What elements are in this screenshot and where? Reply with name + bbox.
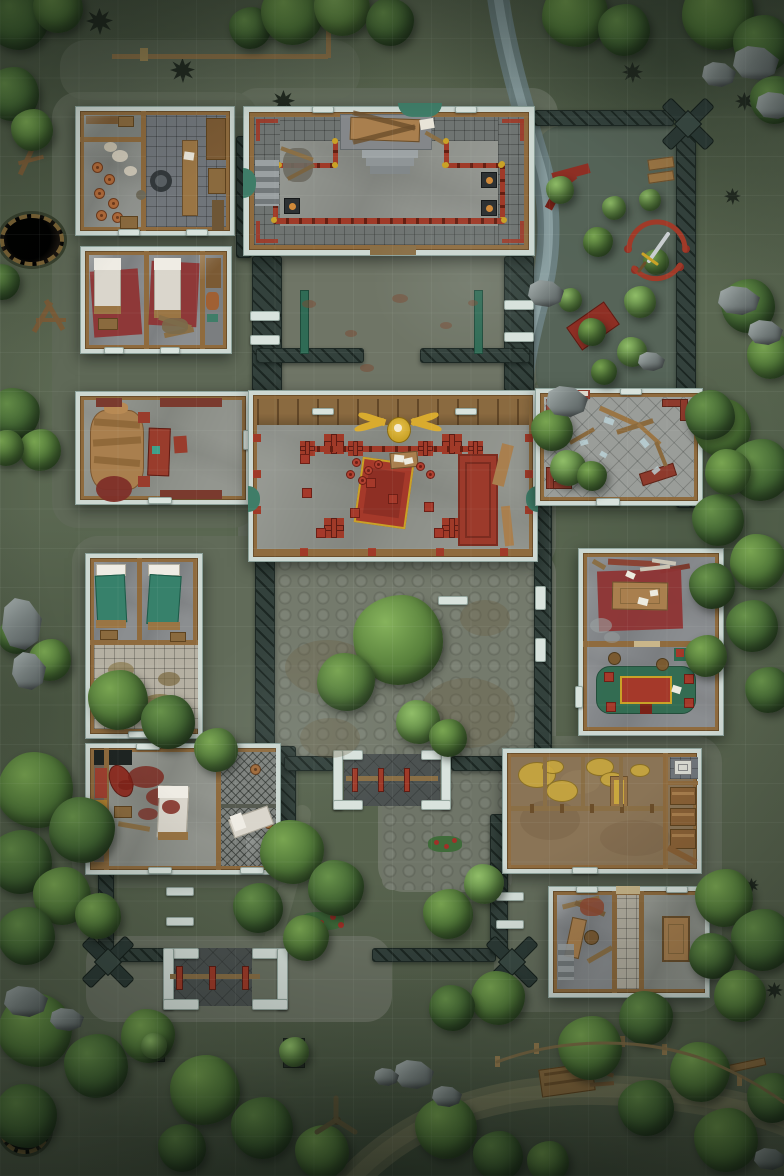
wood-fence-southeast	[497, 1043, 784, 1104]
svg-over	[0, 0, 784, 1176]
sword-blade	[649, 234, 668, 261]
propeller-blade	[317, 1120, 336, 1132]
battle-map[interactable]	[0, 0, 784, 1176]
garden-circle-arc-top	[629, 222, 685, 250]
sword-grip	[639, 263, 645, 271]
propeller-blade	[336, 1120, 355, 1132]
